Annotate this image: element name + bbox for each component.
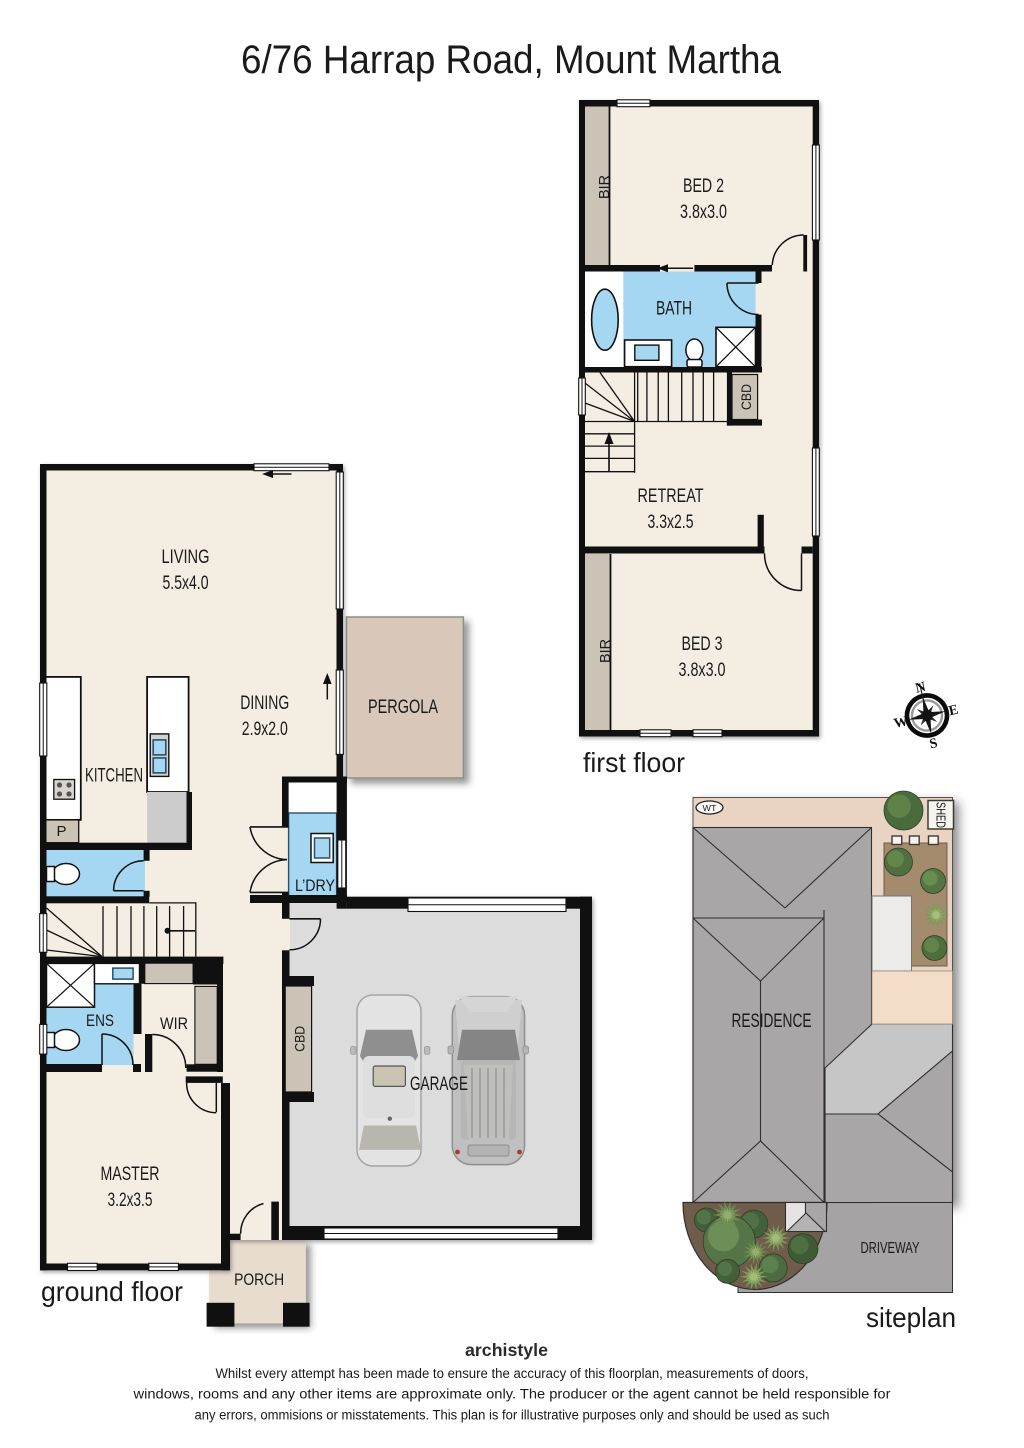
svg-text:DRIVEWAY: DRIVEWAY (861, 1240, 920, 1257)
svg-text:siteplan: siteplan (866, 1302, 956, 1333)
svg-text:archistyle: archistyle (465, 1340, 548, 1360)
svg-text:CBD: CBD (739, 384, 754, 410)
svg-text:BATH: BATH (656, 299, 692, 320)
svg-text:first floor: first floor (583, 747, 685, 778)
svg-text:BED 3: BED 3 (682, 634, 723, 655)
svg-text:WIR: WIR (160, 1014, 188, 1033)
svg-text:3.2x3.5: 3.2x3.5 (108, 1190, 153, 1211)
svg-text:6/76 Harrap Road, Mount Martha: 6/76 Harrap Road, Mount Martha (241, 38, 782, 82)
svg-text:WT: WT (703, 803, 717, 813)
svg-text:2.9x2.0: 2.9x2.0 (242, 719, 288, 740)
svg-text:RESIDENCE: RESIDENCE (732, 1011, 812, 1032)
svg-text:any errors, ommisions or misst: any errors, ommisions or misstatements. … (195, 1407, 830, 1422)
svg-text:SHED: SHED (934, 802, 948, 828)
svg-text:KITCHEN: KITCHEN (85, 766, 143, 787)
svg-text:MASTER: MASTER (101, 1164, 160, 1185)
svg-text:5.5x4.0: 5.5x4.0 (163, 573, 209, 594)
svg-text:BIR: BIR (596, 175, 613, 199)
svg-text:ENS: ENS (86, 1011, 114, 1030)
svg-text:3.8x3.0: 3.8x3.0 (679, 660, 726, 681)
svg-text:PORCH: PORCH (234, 1270, 284, 1289)
svg-text:GARAGE: GARAGE (410, 1074, 468, 1095)
svg-text:3.3x2.5: 3.3x2.5 (648, 512, 694, 533)
svg-text:ground floor: ground floor (41, 1276, 183, 1307)
svg-text:Whilst every attempt has been: Whilst every attempt has been made to en… (216, 1366, 809, 1381)
svg-text:CBD: CBD (293, 1026, 308, 1052)
svg-text:3.8x3.0: 3.8x3.0 (680, 202, 727, 223)
svg-text:BED 2: BED 2 (683, 176, 724, 197)
svg-text:LIVING: LIVING (162, 547, 210, 568)
svg-text:BIR: BIR (597, 639, 614, 663)
svg-text:DINING: DINING (240, 693, 289, 714)
svg-text:windows, rooms and any other i: windows, rooms and any other items are a… (132, 1387, 891, 1402)
svg-text:PERGOLA: PERGOLA (368, 697, 438, 718)
svg-text:L’DRY: L’DRY (295, 876, 335, 895)
svg-text:RETREAT: RETREAT (638, 486, 704, 507)
svg-text:P: P (57, 823, 67, 840)
